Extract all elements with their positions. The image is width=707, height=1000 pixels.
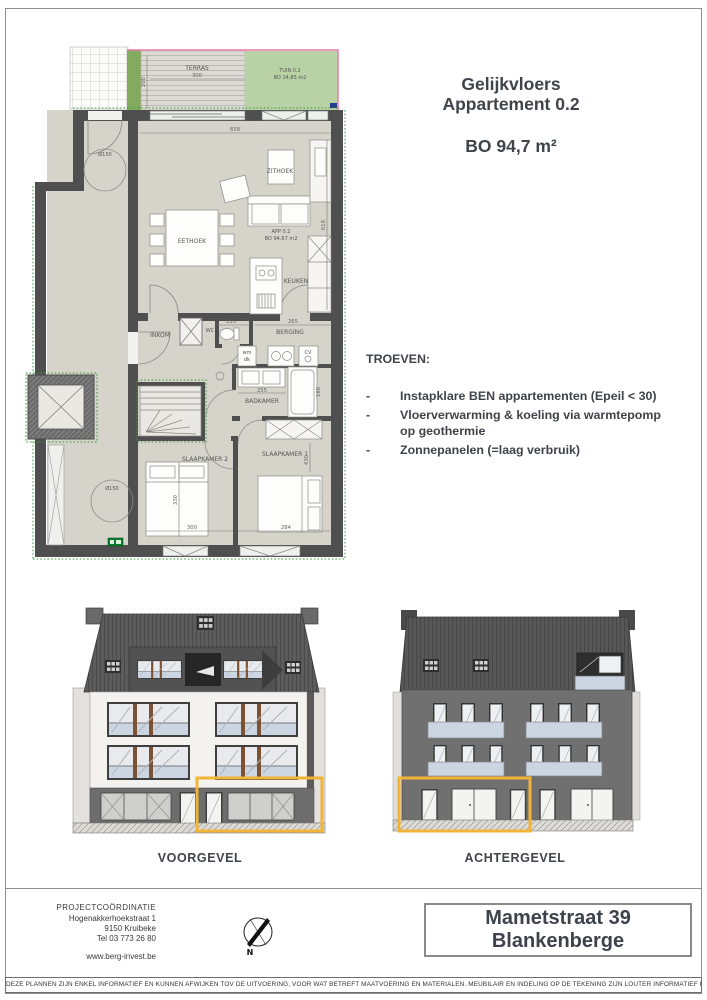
apartment-door [206, 792, 223, 825]
front-elevation [73, 608, 325, 833]
dim-badkamer-depth: 160 [316, 386, 322, 397]
svg-text:CV: CV [305, 350, 312, 356]
room-label-tuin: TUIN 0.2 [278, 68, 300, 74]
turning-circle-bottom-label: Ø150 [105, 485, 118, 492]
staircase [140, 386, 201, 436]
right-wing [632, 692, 640, 820]
roof-vent [423, 659, 439, 672]
dormer-terrace-opening [185, 653, 221, 686]
tv-cabinet [268, 150, 294, 184]
rear-elevation [393, 610, 640, 831]
terrace-door [510, 789, 526, 821]
entrance-tiles [70, 47, 128, 110]
room-label-slaapkamer1: SLAAPKAMER 1 [262, 451, 308, 458]
garage-door-right [228, 793, 294, 820]
terrace-door [421, 789, 437, 821]
toilet [220, 328, 239, 340]
room-label-terras: TERRAS [184, 65, 209, 72]
terrace-door [539, 789, 555, 821]
window-floor1-right [215, 702, 298, 737]
svg-text:wm: wm [243, 350, 252, 356]
garden-gate-marker [330, 103, 337, 108]
tuin-area: BO 14,85 m2 [274, 75, 307, 81]
hedge-strip [127, 50, 141, 110]
dim-sk1-width: 284 [281, 525, 292, 531]
elevator-shaft [28, 375, 94, 439]
compass: N [244, 918, 272, 957]
left-wing [73, 688, 90, 823]
turning-circle-top-label: Ø150 [98, 151, 111, 158]
dim-sk2-depth: 330 [173, 494, 179, 505]
dim-badkamer-width: 255 [257, 388, 267, 394]
apartment-code: APP 0.2 [272, 229, 291, 235]
compass-north-label: N [247, 948, 254, 957]
plan-sheet: { "header": { "title_line1": "Gelijkvloe… [0, 0, 707, 1000]
dim-sk2-width: 300 [187, 525, 198, 531]
roof-vent [105, 660, 121, 673]
svg-text:dk: dk [244, 357, 250, 363]
roof-vent [197, 616, 214, 630]
apartment-area: BO 94,67 m2 [265, 236, 298, 242]
room-label-eethoek: EETHOEK [178, 238, 207, 245]
entrance-door [180, 792, 197, 825]
chimney [86, 608, 103, 624]
dormer-window [137, 660, 182, 679]
room-label-wc: WC [206, 328, 215, 334]
bathroom-vanity [238, 368, 285, 387]
terrace-deck [141, 51, 245, 110]
exit-sign [108, 538, 123, 546]
room-label-badkamer: BADKAMER [245, 398, 279, 405]
boiler-cv: CV [299, 346, 318, 366]
sofa [248, 196, 310, 226]
roof-vent [473, 659, 489, 672]
room-label-berging: BERGING [276, 329, 304, 336]
utility-sink [268, 346, 294, 366]
dim-berging-width: 265 [288, 319, 298, 325]
kitchen-island [250, 258, 282, 314]
room-label-inkom: INKOM [150, 332, 170, 339]
dim-living-width: 658 [230, 127, 241, 133]
room-label-zithoek: ZITHOEK [267, 168, 295, 175]
bed-slaapkamer1 [258, 476, 322, 532]
garage-door-left [101, 793, 171, 820]
floor-plan: TERRAS TUIN 0.2 BO 14,85 m2 300 200 [26, 47, 345, 559]
riser-shaft [180, 318, 202, 345]
bathtub [288, 367, 317, 417]
window-floor1-left [107, 702, 190, 737]
ground-hatch [393, 820, 633, 831]
dim-terras-depth: 200 [141, 76, 147, 87]
facade-shadow-edge [307, 692, 314, 790]
dim-sk1-depth: 430 [304, 454, 310, 465]
room-label-keuken: KEUKEN [284, 278, 308, 285]
drawing-canvas: TERRAS TUIN 0.2 BO 14,85 m2 300 200 [0, 0, 707, 1000]
window-floor2-left [107, 745, 190, 780]
dormer-window [223, 660, 268, 679]
roof-balcony [575, 653, 625, 692]
window-floor2-right [215, 745, 298, 780]
dim-terras-width: 300 [192, 73, 203, 79]
dim-wc-width: 150 [226, 319, 237, 325]
wardrobe [266, 420, 322, 439]
washing-machine: wm dk [238, 346, 256, 366]
roof-vent [285, 661, 301, 674]
dim-living-depth: 618 [321, 219, 327, 230]
